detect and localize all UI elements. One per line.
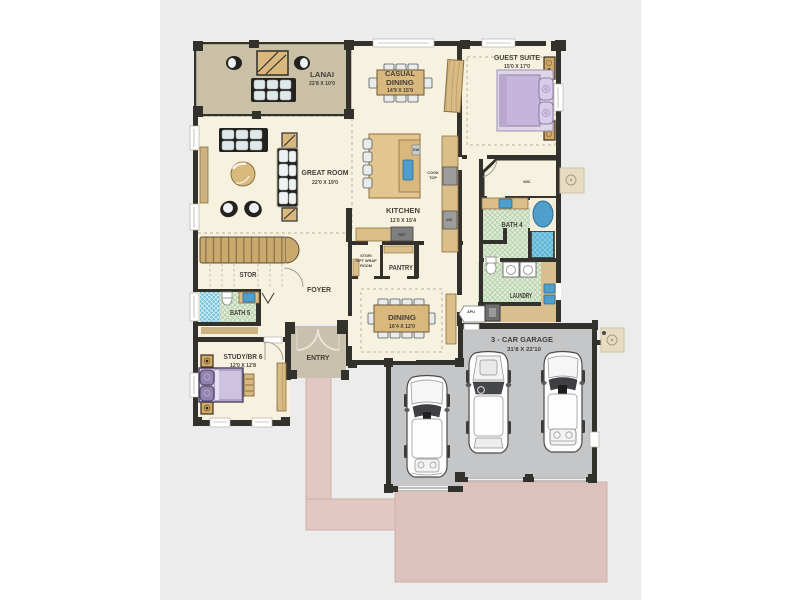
svg-text:240: 240 xyxy=(446,218,452,222)
svg-text:14'9 X 15'9: 14'9 X 15'9 xyxy=(387,88,413,94)
svg-text:BATH 4: BATH 4 xyxy=(502,222,523,229)
svg-text:STOR/: STOR/ xyxy=(360,254,372,258)
svg-text:16'4 X 12'0: 16'4 X 12'0 xyxy=(389,324,415,330)
svg-text:WIC: WIC xyxy=(523,180,531,184)
svg-text:22'8 X 10'0: 22'8 X 10'0 xyxy=(309,81,335,87)
svg-text:22'0 X 19'0: 22'0 X 19'0 xyxy=(312,180,338,186)
svg-text:LAUNDRY: LAUNDRY xyxy=(510,293,532,300)
svg-text:12'0 X 12'8: 12'0 X 12'8 xyxy=(230,363,256,369)
svg-text:STUDY/BR 6: STUDY/BR 6 xyxy=(224,354,263,361)
svg-text:FOYER: FOYER xyxy=(307,287,331,294)
svg-text:11'0 X 15'4: 11'0 X 15'4 xyxy=(390,218,416,224)
svg-text:ROOM: ROOM xyxy=(360,264,372,268)
svg-text:GUEST SUITE: GUEST SUITE xyxy=(494,55,540,62)
svg-text:3 - CAR GARAGE: 3 - CAR GARAGE xyxy=(491,337,553,344)
svg-text:KITCHEN: KITCHEN xyxy=(386,208,420,215)
svg-text:CASUAL: CASUAL xyxy=(385,71,416,78)
svg-text:REF: REF xyxy=(398,233,406,237)
svg-text:APU: APU xyxy=(467,310,475,314)
svg-text:DW: DW xyxy=(413,148,420,152)
svg-text:15'0 X 17'0: 15'0 X 17'0 xyxy=(504,64,530,70)
svg-text:COOK: COOK xyxy=(427,171,439,175)
svg-text:STOR: STOR xyxy=(240,272,257,279)
svg-text:31'8 X 22'10: 31'8 X 22'10 xyxy=(507,347,541,353)
svg-text:TOP: TOP xyxy=(429,176,437,180)
svg-text:LANAI: LANAI xyxy=(310,72,334,79)
svg-text:BATH 5: BATH 5 xyxy=(230,310,250,317)
svg-text:DINING: DINING xyxy=(388,315,417,322)
svg-text:DINING: DINING xyxy=(386,80,415,87)
svg-text:GIFT WRAP: GIFT WRAP xyxy=(355,259,377,263)
svg-text:GREAT ROOM: GREAT ROOM xyxy=(302,170,349,177)
svg-text:ENTRY: ENTRY xyxy=(307,355,330,362)
svg-text:PANTRY: PANTRY xyxy=(389,265,413,272)
